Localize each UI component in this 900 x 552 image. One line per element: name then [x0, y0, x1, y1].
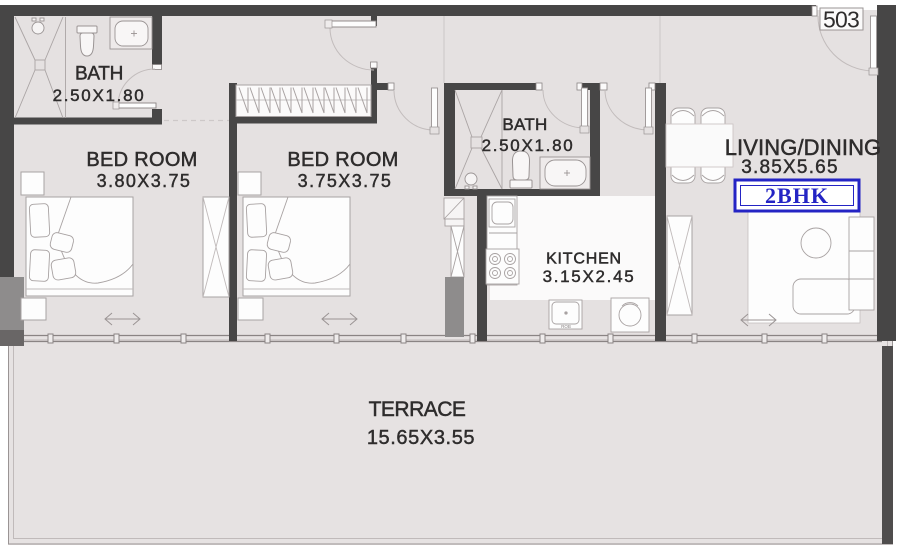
- svg-text:BED ROOM: BED ROOM: [86, 149, 197, 171]
- svg-text:3.85X5.65: 3.85X5.65: [741, 157, 838, 178]
- svg-text:2.50X1.80: 2.50X1.80: [53, 86, 146, 105]
- svg-text:BATH: BATH: [502, 115, 547, 134]
- svg-text:503: 503: [823, 7, 859, 33]
- svg-text:3.15X2.45: 3.15X2.45: [543, 267, 636, 286]
- svg-text:BATH: BATH: [75, 64, 123, 85]
- svg-text:BED ROOM: BED ROOM: [287, 149, 398, 171]
- svg-text:3.80X3.75: 3.80X3.75: [97, 171, 192, 191]
- svg-text:2.50X1.80: 2.50X1.80: [482, 136, 575, 155]
- svg-text:TERRACE: TERRACE: [369, 398, 466, 421]
- svg-text:ROB: ROB: [561, 324, 571, 329]
- svg-text:KITCHEN: KITCHEN: [546, 251, 622, 268]
- svg-text:2BHK: 2BHK: [765, 183, 829, 208]
- svg-text:15.65X3.55: 15.65X3.55: [367, 427, 475, 449]
- svg-text:3.75X3.75: 3.75X3.75: [298, 171, 393, 191]
